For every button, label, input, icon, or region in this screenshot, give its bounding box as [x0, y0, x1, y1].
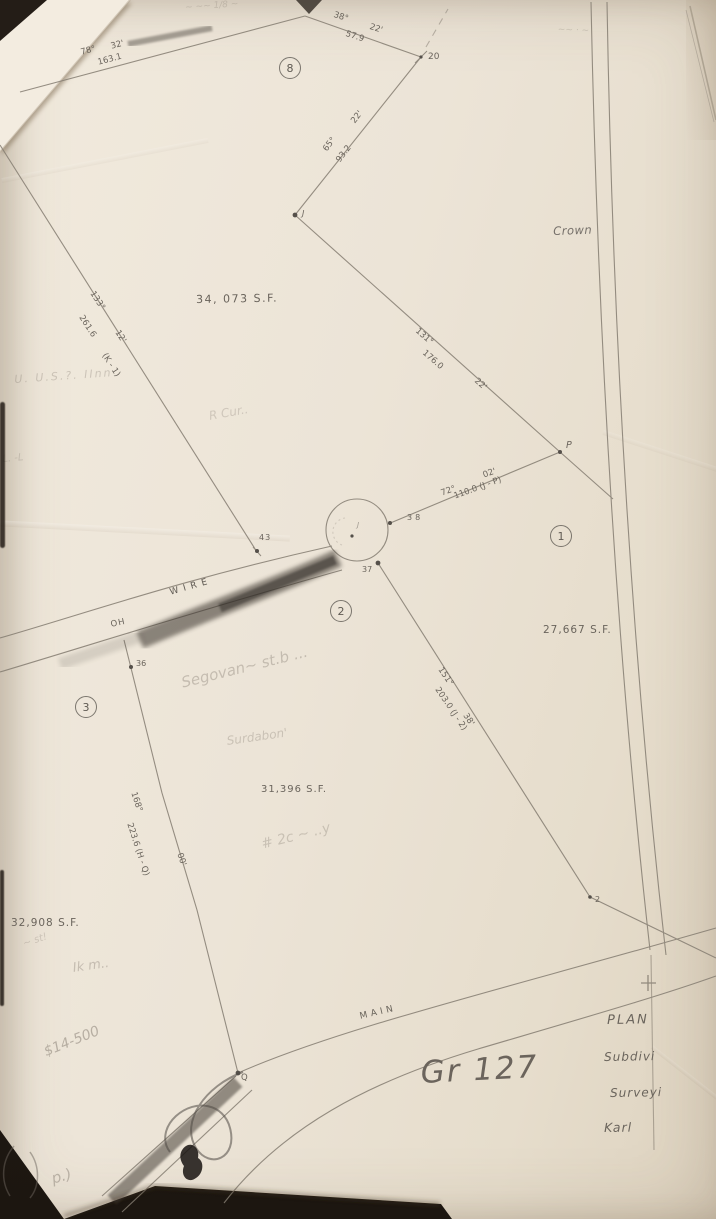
- page-edge-pencil-top-right: [686, 10, 714, 122]
- lot-3-marker: 3: [75, 696, 97, 718]
- point-43-label: 43: [259, 534, 271, 542]
- plus-cross-mark: [641, 975, 656, 991]
- lot8-north-line: [20, 16, 305, 92]
- background-left-sliver-lower: [0, 870, 4, 1006]
- titleblock-subdivision: Subdivi: [604, 1050, 655, 1063]
- line-37-2: [378, 563, 590, 897]
- line-P-southeast: [560, 452, 613, 499]
- line-2-east: [590, 897, 716, 958]
- point-dot-38: [388, 521, 392, 525]
- wire-road-smudge-dark: [220, 560, 335, 608]
- page-edge-crease-top-right: [690, 6, 716, 120]
- dashed-line-at-20: [426, 9, 448, 47]
- point-37-label: 37: [362, 566, 372, 574]
- point-dot-20: [419, 55, 422, 58]
- point-dot-36: [129, 665, 133, 669]
- point-2-label: 2: [595, 896, 600, 904]
- crown-road-west-line: [591, 2, 650, 950]
- southwest-road-smudge: [112, 1082, 238, 1200]
- lot-1-number: 1: [558, 530, 565, 543]
- lot-3-area-label: 32,908 S.F.: [11, 918, 80, 929]
- lot-2-marker: 2: [330, 600, 352, 622]
- point-dot-43: [255, 549, 259, 553]
- lot-2-area-label: 31,396 S.F.: [261, 785, 327, 795]
- lot-8-marker: 8: [279, 57, 301, 79]
- point-P-label: P: [566, 441, 572, 451]
- survey-linework: [0, 0, 716, 1219]
- lot-1-area-label: 27,667 S.F.: [543, 625, 612, 636]
- smudge-on-north-line: [128, 28, 212, 44]
- photo-of-survey-plan: 8 1 2 3 34, 073 S.F. 27,667 S.F. 31,396 …: [0, 0, 716, 1219]
- line-133-boundary: [0, 145, 257, 552]
- point-dot-37: [376, 561, 381, 566]
- point-36-label: 36: [136, 660, 146, 668]
- crown-land-label: Crown: [553, 225, 592, 238]
- lot-3-number: 3: [83, 701, 90, 714]
- point-dot-2: [588, 895, 592, 899]
- point-20-label: 20: [428, 53, 439, 62]
- titleblock-plan: PLAN: [607, 1013, 649, 1027]
- handwritten-gr-number: Gr 127: [420, 1052, 539, 1089]
- background-left-sliver-upper: [0, 402, 5, 548]
- corner-paren-left: [4, 1146, 14, 1196]
- ink-blob: [180, 1145, 202, 1180]
- point-dot-J: [293, 213, 298, 218]
- fold-crease-line: [0, 0, 130, 152]
- handwritten-l-marks: L. -L: [2, 453, 24, 465]
- point-dot-center-J: [350, 534, 353, 537]
- corner-paren-right: [30, 1152, 38, 1198]
- point-dot-P: [558, 450, 562, 454]
- point-J-center-label: J: [357, 522, 359, 529]
- line-20-J: [295, 57, 421, 215]
- lot-8-number: 8: [287, 62, 294, 75]
- lot-8-area-label: 34, 073 S.F.: [196, 293, 278, 305]
- titleblock-karl: Karl: [604, 1122, 632, 1135]
- titleblock-surveyed: Surveyi: [610, 1086, 662, 1099]
- point-Q-label: Q: [241, 1074, 248, 1083]
- point-38-label: 38: [407, 514, 423, 522]
- crown-road-east-line: [607, 2, 666, 955]
- lot-1-marker: 1: [550, 525, 572, 547]
- cul-de-sac-inner-arc: [333, 518, 345, 545]
- lot-2-number: 2: [338, 605, 345, 618]
- cul-de-sac-circle: [326, 499, 388, 561]
- pencil-scrawl-top-right: ~~ · ~: [558, 26, 590, 36]
- point-J-label: J: [302, 210, 304, 218]
